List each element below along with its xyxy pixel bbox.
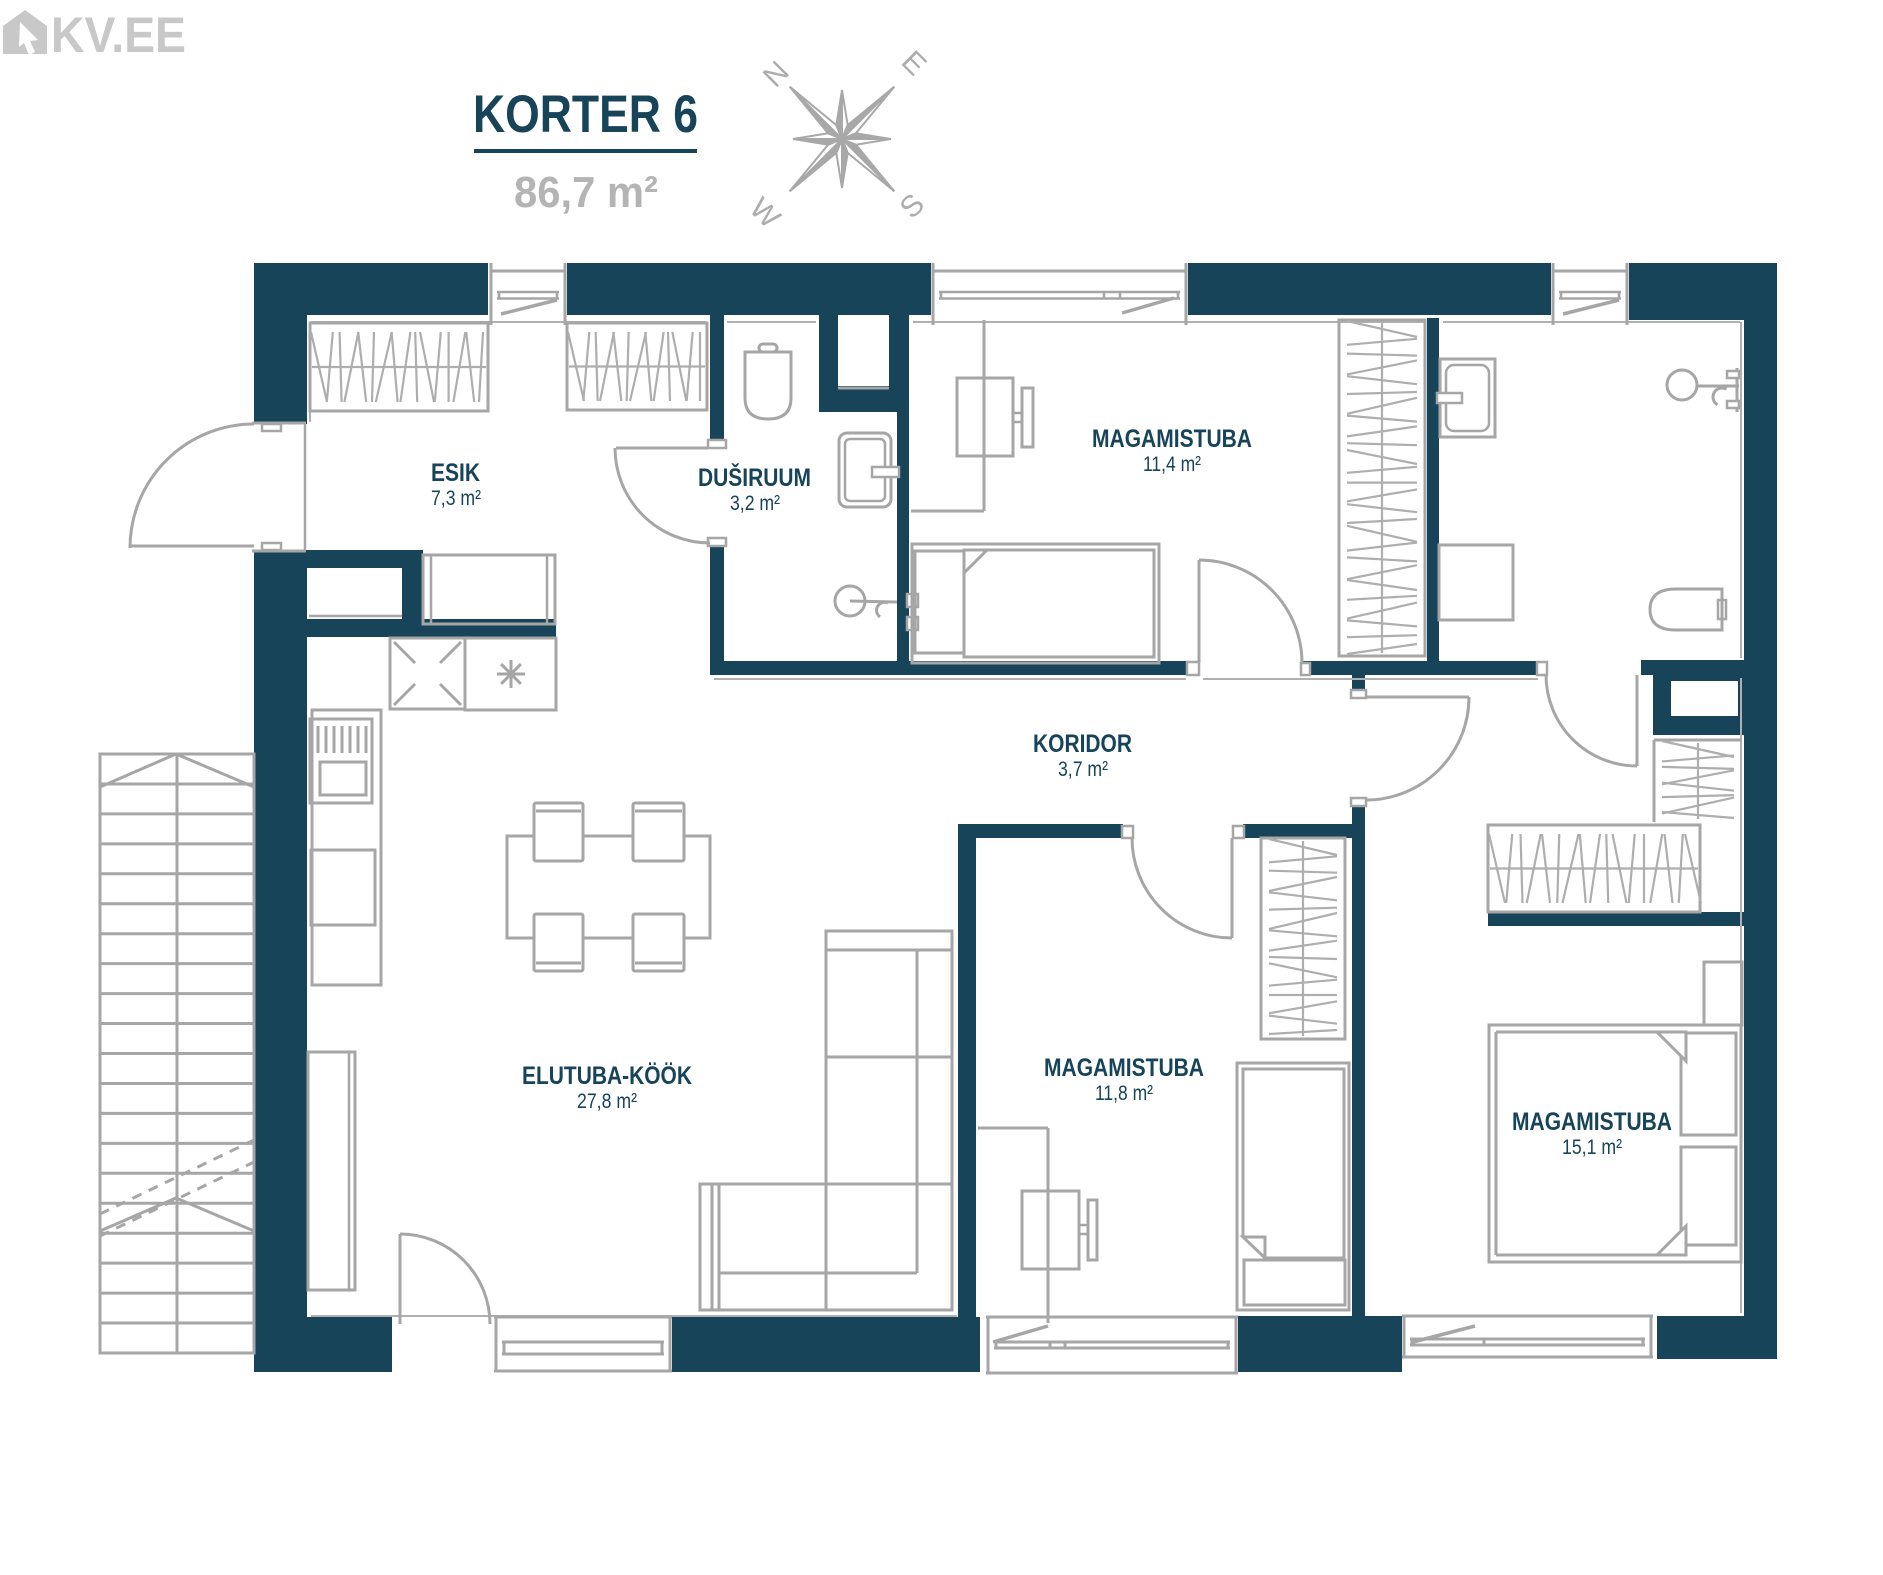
svg-text:MAGAMISTUBA: MAGAMISTUBA (1092, 425, 1252, 453)
svg-text:7,3 m²: 7,3 m² (431, 487, 481, 510)
svg-text:ELUTUBA-KÖÖK: ELUTUBA-KÖÖK (522, 1061, 692, 1090)
svg-text:KORIDOR: KORIDOR (1033, 730, 1132, 758)
svg-text:86,7 m²: 86,7 m² (514, 168, 658, 217)
svg-text:ESIK: ESIK (431, 459, 480, 487)
svg-text:MAGAMISTUBA: MAGAMISTUBA (1044, 1054, 1204, 1082)
svg-text:KV.EE: KV.EE (51, 7, 186, 63)
svg-text:3,2 m²: 3,2 m² (730, 492, 780, 515)
svg-text:11,8 m²: 11,8 m² (1095, 1082, 1153, 1105)
svg-text:DUŠIRUUM: DUŠIRUUM (698, 462, 811, 492)
svg-text:15,1 m²: 15,1 m² (1562, 1136, 1622, 1159)
svg-text:11,4 m²: 11,4 m² (1143, 453, 1201, 476)
svg-text:KORTER 6: KORTER 6 (473, 85, 698, 144)
svg-text:3,7 m²: 3,7 m² (1058, 758, 1108, 781)
svg-text:27,8 m²: 27,8 m² (577, 1090, 637, 1113)
svg-text:MAGAMISTUBA: MAGAMISTUBA (1512, 1108, 1672, 1136)
